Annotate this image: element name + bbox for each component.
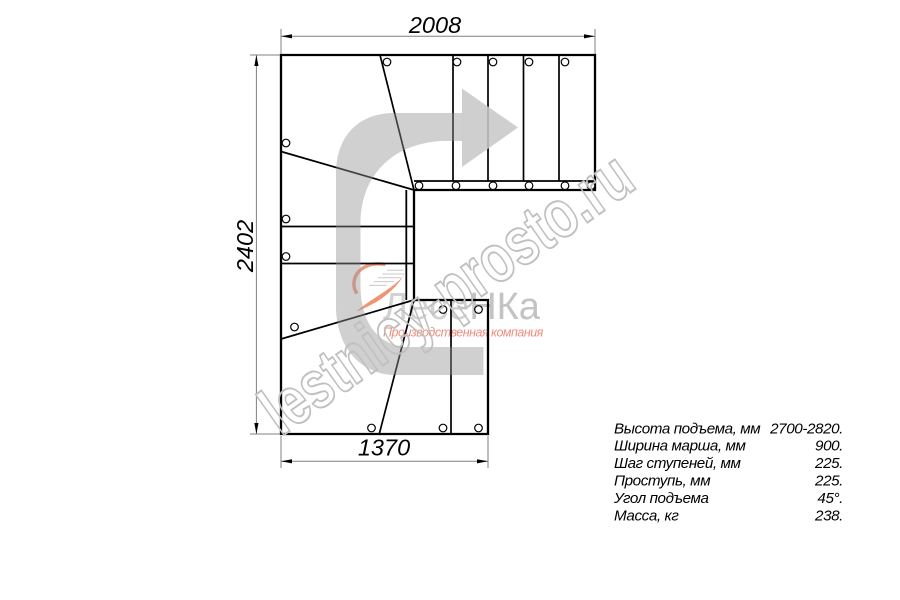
svg-text:Шаг ступеней, мм: Шаг ступеней, мм	[614, 455, 742, 472]
svg-text:900.: 900.	[815, 438, 843, 455]
svg-text:Проступь, мм: Проступь, мм	[614, 473, 711, 490]
svg-text:225.: 225.	[814, 473, 843, 490]
svg-text:2008: 2008	[408, 12, 461, 38]
svg-text:Высота подъема, мм: Высота подъема, мм	[614, 420, 761, 437]
svg-text:1370: 1370	[358, 435, 410, 461]
svg-text:Угол подъема: Угол подъема	[613, 490, 709, 507]
svg-text:lestnicy-prosto.ru: lestnicy-prosto.ru	[245, 136, 646, 449]
svg-text:2402: 2402	[232, 220, 258, 273]
svg-text:45°.: 45°.	[817, 490, 843, 507]
svg-text:238.: 238.	[814, 507, 843, 524]
svg-text:Ширина марша, мм: Ширина марша, мм	[614, 438, 747, 455]
svg-text:Масса, кг: Масса, кг	[614, 507, 679, 524]
svg-text:2700-2820.: 2700-2820.	[769, 420, 843, 437]
svg-text:225.: 225.	[814, 455, 843, 472]
